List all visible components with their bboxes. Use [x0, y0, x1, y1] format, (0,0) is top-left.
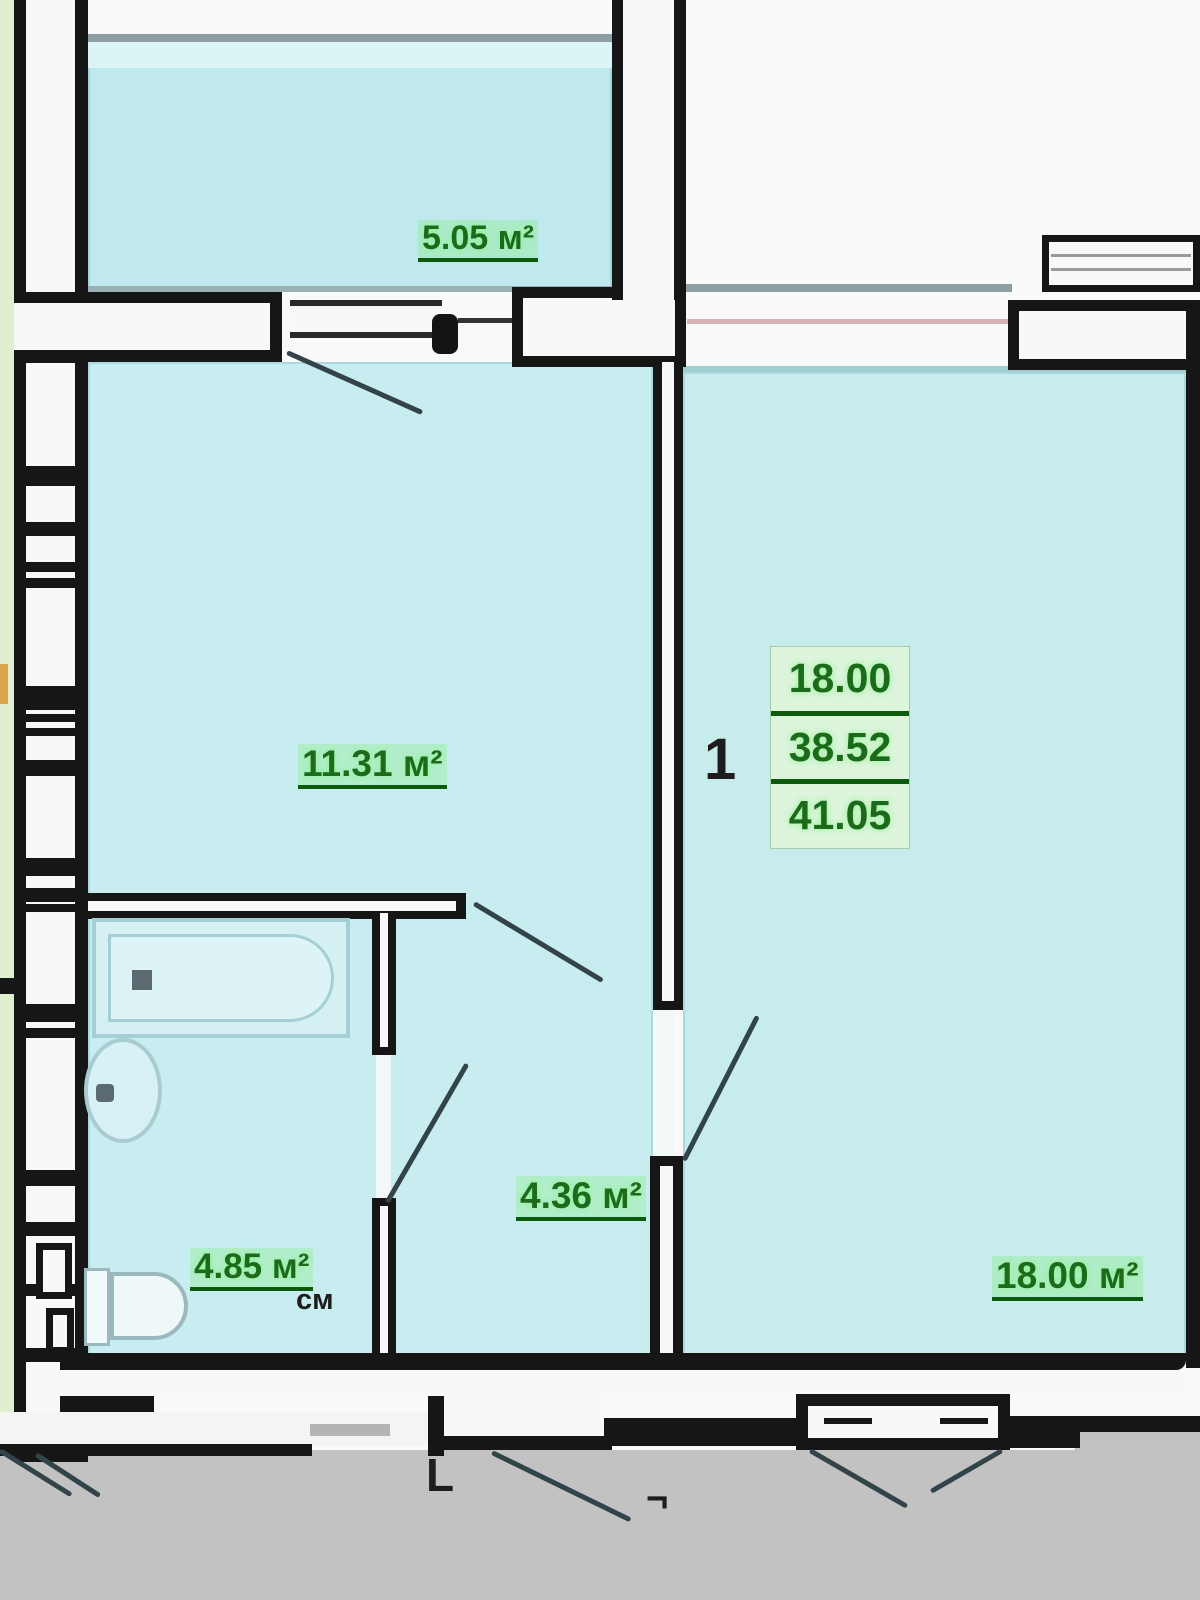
wall-segment: [26, 578, 75, 588]
entrance-recess: [444, 1396, 606, 1440]
balcony-area-label: 5.05 м²: [418, 220, 538, 262]
hallway-area-label: 4.36 м²: [516, 1176, 646, 1221]
wall-segment: [26, 466, 75, 486]
washer-label: см: [296, 1284, 334, 1317]
wall-segment: [26, 858, 75, 876]
divider-wall-lower: [650, 1156, 683, 1356]
ground-area: [0, 1450, 1200, 1600]
bathtub: [92, 918, 350, 1038]
bath-partition-lower: [372, 1198, 396, 1356]
room-area-label: 11.31 м²: [298, 744, 447, 789]
ground-step-right: [1075, 1430, 1200, 1460]
apartment-area-summary: 18.00 38.52 41.05: [770, 646, 910, 849]
door-leaf: [376, 1055, 391, 1200]
apartment-number: 1: [704, 726, 736, 793]
divider-wall-upper: [653, 362, 683, 1010]
living-room-area-label: 18.00 м²: [992, 1256, 1143, 1301]
wall-segment: [26, 562, 75, 572]
shaft-grid-line: [1051, 254, 1191, 257]
hallway-top-wall: [88, 893, 466, 919]
balcony-right-wall: [612, 0, 686, 300]
top-window-inner-line: [687, 319, 1008, 324]
total-area-value: 41.05: [771, 784, 909, 848]
bottom-wall: [60, 1353, 1186, 1370]
vent-shaft-box: [1042, 235, 1200, 292]
floor-plan: L ¬ 5.05 м² 11.31 м² 4.36 м² 4.85 м² 18.…: [0, 0, 1200, 1600]
bottom-wall-post: [428, 1396, 444, 1456]
bottom-wall-mid: [604, 1418, 800, 1446]
washbasin: [84, 1038, 162, 1143]
balcony-rail-line: [88, 34, 612, 42]
wall-segment: [26, 686, 75, 710]
wall-segment: [26, 888, 75, 902]
window-bay: [796, 1394, 1010, 1450]
bottom-parapet: [60, 1370, 1186, 1398]
balcony-door-handle: [432, 314, 458, 354]
wall-speck: [0, 664, 8, 704]
right-wall: [1186, 300, 1200, 1368]
wall-segment: [26, 1170, 75, 1186]
bath-partition-upper: [372, 913, 396, 1055]
window-bay-tick: [824, 1418, 872, 1424]
wall-segment: [26, 1222, 75, 1236]
left-wall: [14, 0, 88, 1462]
bottom-wall-line-left: [0, 1444, 312, 1456]
wall-segment: [26, 714, 75, 722]
wall-segment: [26, 728, 75, 736]
balcony-glass-strip: [88, 42, 612, 68]
entrance-recess-edge: [444, 1436, 612, 1450]
balcony-bottom-wall: [14, 292, 282, 362]
living-room-floor: [683, 372, 1186, 1355]
ground-mark-corner: ¬: [646, 1478, 668, 1521]
toilet-bowl: [110, 1272, 188, 1340]
wall-segment: [26, 904, 75, 912]
bottom-wall-right-step: [1072, 1416, 1200, 1432]
wall-segment: [26, 1004, 75, 1022]
parapet-gray-tick: [310, 1424, 390, 1436]
wall-segment: [26, 1028, 75, 1038]
bathroom-area-label: 4.85 м²: [190, 1248, 313, 1291]
washbasin-tap: [96, 1084, 114, 1102]
balcony-door-frame-line: [458, 318, 512, 323]
bathtub-drain: [132, 970, 152, 990]
window-bay-tick: [940, 1418, 988, 1424]
wall-segment: [26, 760, 75, 776]
living-area-value: 18.00: [771, 647, 909, 716]
living-room-top-wall: [1008, 300, 1200, 370]
toilet-tank: [84, 1268, 110, 1346]
balcony-window: [290, 300, 442, 338]
wall-stub-left: [0, 978, 16, 994]
subtotal-area-value: 38.52: [771, 716, 909, 785]
ground-mark-l: L: [426, 1448, 454, 1502]
duct-box: [36, 1243, 72, 1299]
door-leaf: [657, 1010, 674, 1158]
bottom-wall-right: [1010, 1416, 1080, 1448]
wall-segment: [26, 522, 75, 536]
bottom-wall-segment: [60, 1396, 154, 1412]
shaft-grid-line: [1051, 268, 1191, 271]
duct-box: [46, 1308, 74, 1354]
